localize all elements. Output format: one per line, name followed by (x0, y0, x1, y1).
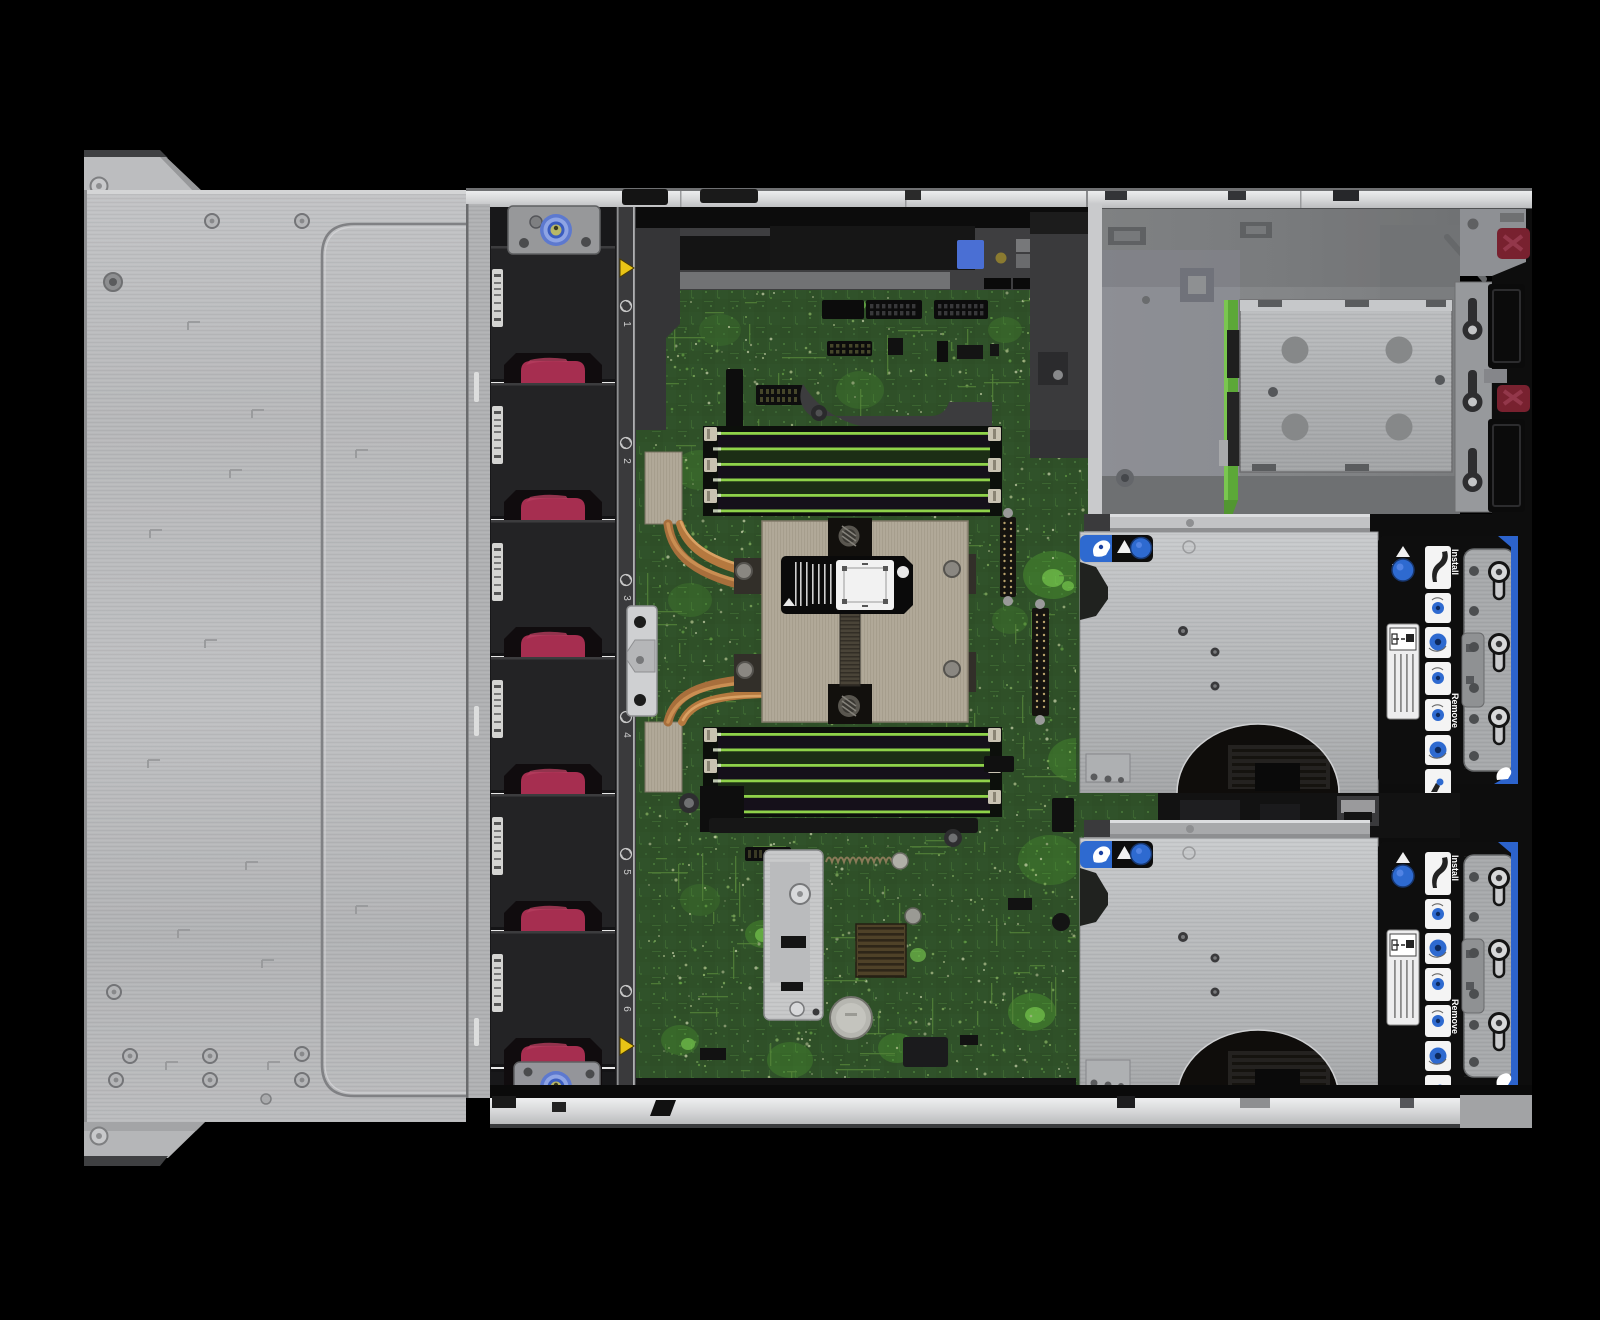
svg-text:2: 2 (621, 458, 632, 464)
svg-text:3: 3 (621, 595, 632, 601)
svg-text:Remove: Remove (1450, 999, 1460, 1034)
svg-text:Remove: Remove (1450, 693, 1460, 728)
svg-text:6: 6 (621, 1006, 632, 1012)
svg-text:Install: Install (1450, 855, 1460, 881)
svg-text:4: 4 (621, 732, 632, 738)
svg-text:Install: Install (1450, 549, 1460, 575)
svg-text:1: 1 (621, 321, 632, 327)
svg-text:5: 5 (621, 869, 632, 875)
